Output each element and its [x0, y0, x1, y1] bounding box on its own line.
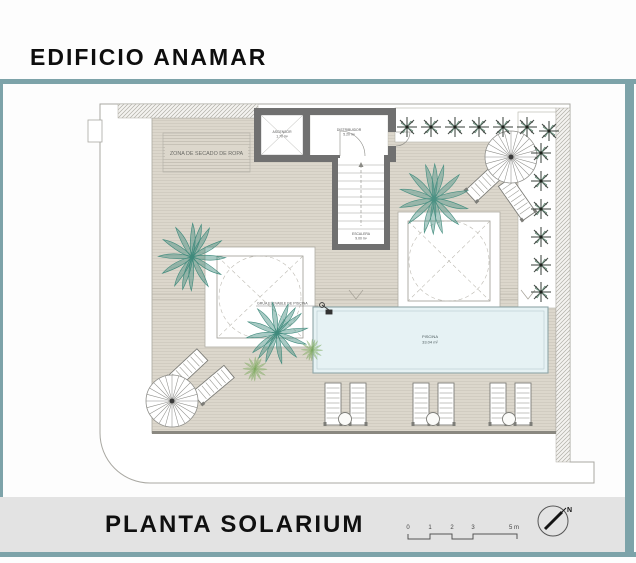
hall-room — [310, 115, 388, 160]
parasol — [146, 375, 198, 427]
side-table — [427, 413, 440, 426]
bush — [531, 255, 551, 275]
stair-label: ESCALERA — [352, 232, 371, 236]
scale-bar: 0 1 2 3 5 m — [406, 525, 519, 539]
bush — [469, 117, 489, 137]
rooftop-rooms: ASCENSOR 1.70 m² DISTRIBUIDOR 5.20 m² — [254, 108, 410, 162]
drying-zone: ZONA DE SECADO DE ROPA — [163, 133, 250, 172]
floor-plan-svg: ZONA DE SECADO DE ROPA — [0, 0, 636, 563]
scale-tick-3: 3 — [471, 525, 475, 531]
bush — [421, 117, 441, 137]
sun-lounger — [514, 383, 533, 426]
bush — [531, 199, 551, 219]
terrace-bottom-wall — [152, 431, 556, 434]
drying-zone-label: ZONA DE SECADO DE ROPA — [170, 151, 244, 157]
scale-tick-2: 2 — [450, 525, 454, 531]
side-table — [503, 413, 516, 426]
hall-area: 5.20 m² — [343, 133, 355, 137]
scale-tick-0: 0 — [406, 525, 410, 531]
elevator-area: 1.70 m² — [276, 135, 288, 139]
bush — [531, 171, 551, 191]
north-label: N — [567, 507, 572, 514]
pool-label: PISCINA — [422, 334, 438, 339]
bush — [493, 117, 513, 137]
north-arrow: N — [538, 506, 572, 536]
side-table — [339, 413, 352, 426]
bush — [517, 117, 537, 137]
scale-tick-5: 5 m — [509, 525, 519, 531]
elevator-label: ASCENSOR — [272, 130, 292, 134]
bush — [539, 121, 559, 141]
right-wall-hatch — [556, 108, 570, 462]
hall-label: DISTRIBUIDOR — [337, 128, 362, 132]
bush — [531, 227, 551, 247]
skylight-right — [398, 212, 500, 310]
pool-area: 33.04 m² — [422, 339, 438, 344]
scale-tick-1: 1 — [428, 525, 432, 531]
bush — [397, 117, 417, 137]
bush — [445, 117, 465, 137]
parapet-hatch — [118, 104, 258, 118]
bush — [531, 143, 551, 163]
stair-area: 9.00 m² — [355, 237, 367, 241]
bush — [531, 282, 551, 302]
parasol — [485, 131, 537, 183]
staircase: ESCALERA 9.00 m² — [332, 155, 390, 250]
page: EDIFICIO ANAMAR PLANTA SOLARIUM — [0, 0, 636, 563]
pool-lift-label: GRUA ELEVABLE DE PISCINA — [257, 301, 308, 305]
pool: PISCINA 33.04 m² — [313, 307, 548, 373]
